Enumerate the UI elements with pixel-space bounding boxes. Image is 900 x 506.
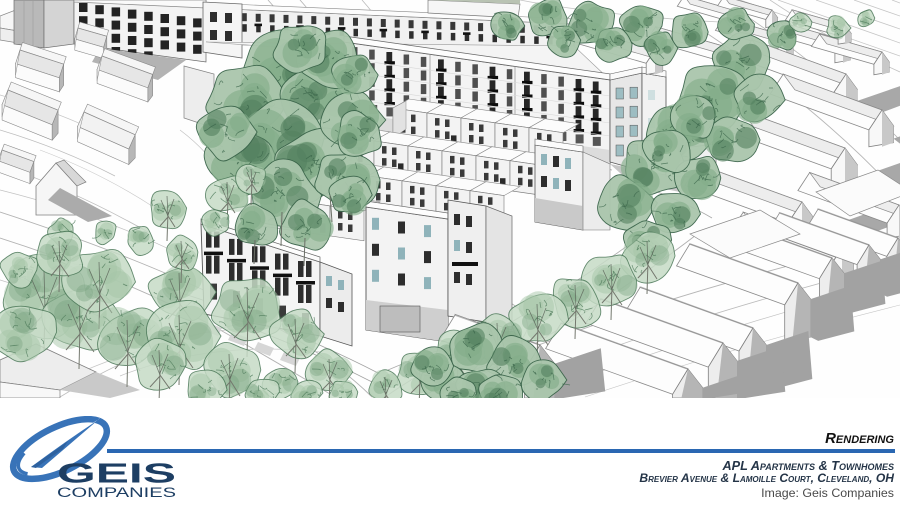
svg-text:GEIS: GEIS [57, 458, 176, 489]
svg-text:COMPANIES: COMPANIES [57, 485, 176, 500]
